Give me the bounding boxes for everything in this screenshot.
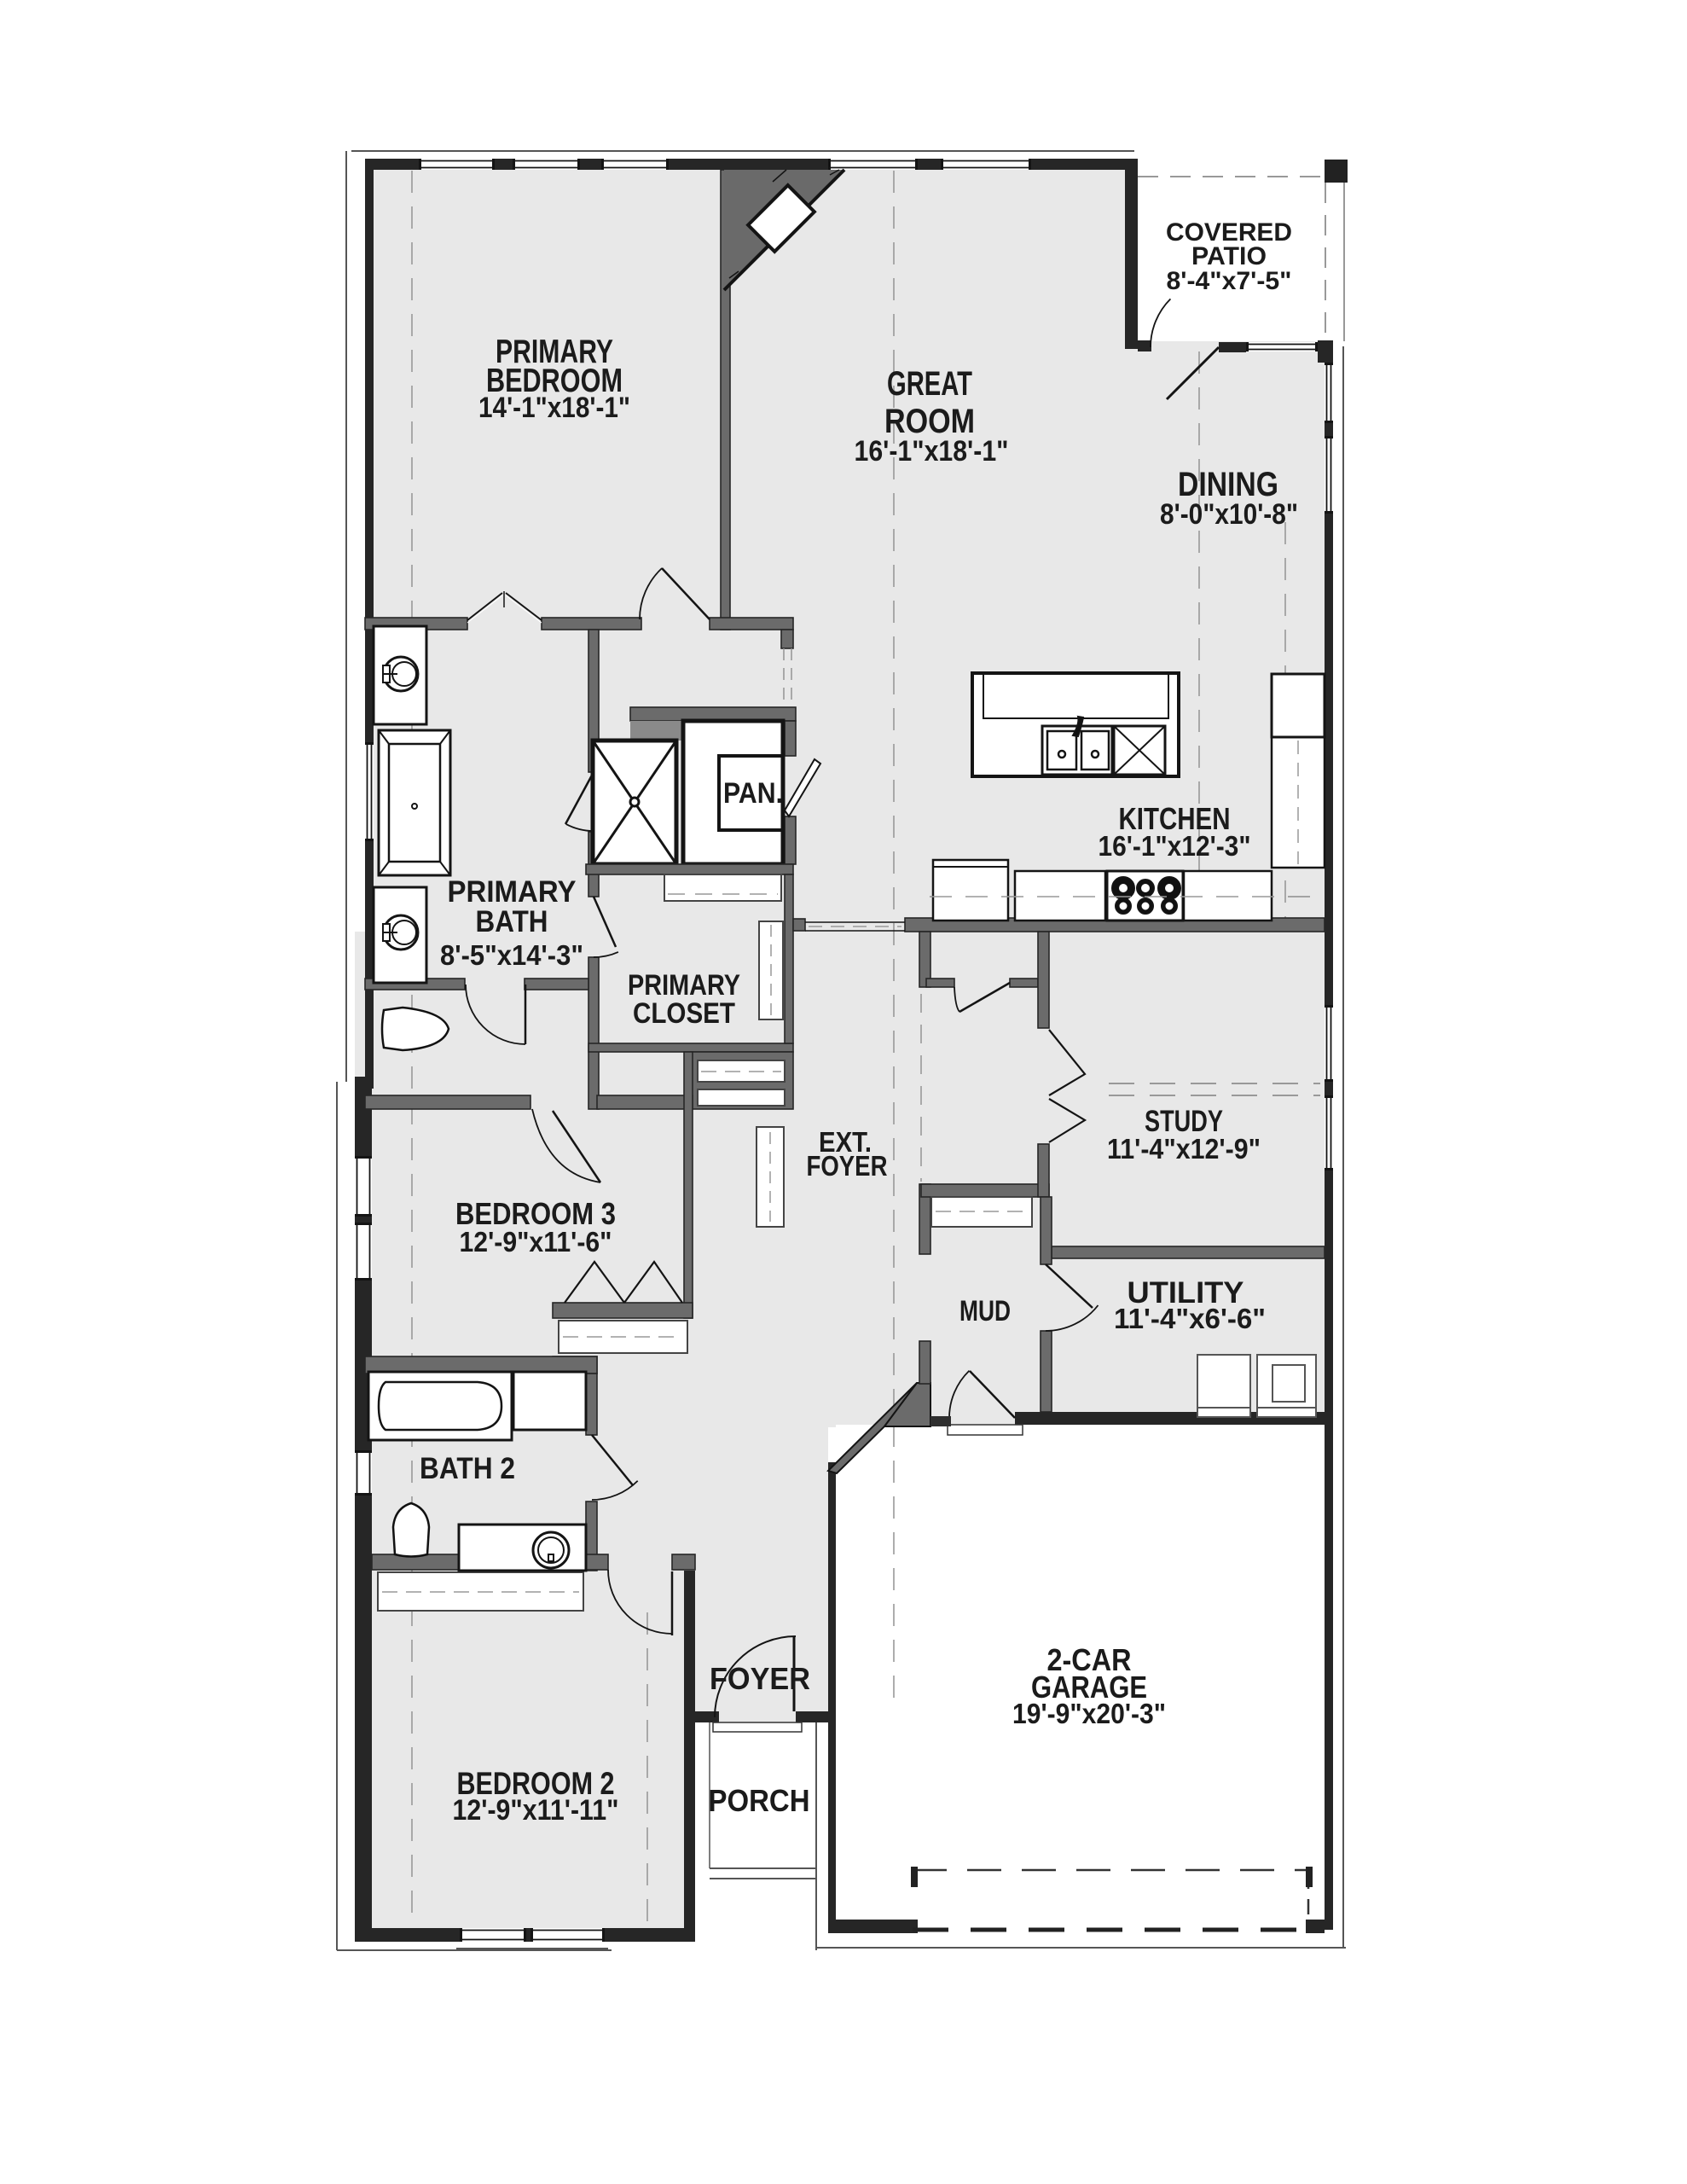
svg-text:16'-1"x12'-3": 16'-1"x12'-3"	[1099, 830, 1251, 862]
svg-text:MUD: MUD	[959, 1295, 1011, 1327]
svg-text:11'-4"x12'-9": 11'-4"x12'-9"	[1107, 1133, 1261, 1165]
svg-text:PRIMARY: PRIMARY	[448, 875, 577, 909]
svg-text:11'-4"x6'-6": 11'-4"x6'-6"	[1114, 1303, 1266, 1334]
svg-text:8'-4"x7'-5": 8'-4"x7'-5"	[1167, 267, 1292, 295]
svg-text:CLOSET: CLOSET	[633, 997, 735, 1030]
svg-text:12'-9"x11'-6": 12'-9"x11'-6"	[460, 1226, 612, 1258]
svg-text:BATH: BATH	[476, 905, 548, 938]
svg-text:16'-1"x18'-1": 16'-1"x18'-1"	[855, 435, 1009, 468]
svg-text:BATH 2: BATH 2	[420, 1452, 515, 1485]
svg-text:PAN.: PAN.	[723, 777, 783, 810]
svg-text:12'-9"x11'-11": 12'-9"x11'-11"	[453, 1794, 619, 1827]
svg-text:8'-0"x10'-8": 8'-0"x10'-8"	[1160, 498, 1298, 531]
svg-text:GREAT: GREAT	[887, 365, 972, 403]
svg-text:FOYER: FOYER	[807, 1150, 888, 1182]
svg-text:FOYER: FOYER	[710, 1661, 810, 1696]
svg-text:8'-5"x14'-3": 8'-5"x14'-3"	[440, 939, 583, 971]
svg-text:PORCH: PORCH	[709, 1783, 810, 1818]
svg-text:19'-9"x20'-3": 19'-9"x20'-3"	[1012, 1698, 1166, 1729]
svg-text:14'-1"x18'-1": 14'-1"x18'-1"	[478, 392, 630, 424]
